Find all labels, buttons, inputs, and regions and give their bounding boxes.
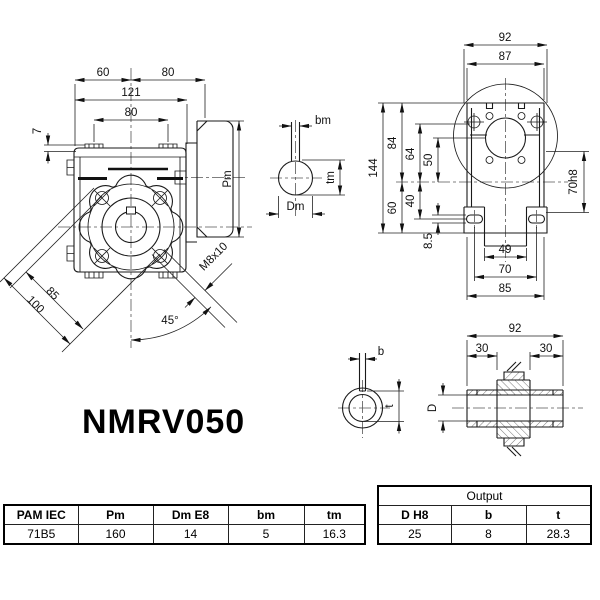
value-b: 8	[451, 525, 526, 545]
label-pm: Pm	[222, 170, 234, 187]
main-table-header-row: PAM IEC Pm Dm E8 bm tm	[4, 505, 365, 525]
output-table-title-row: Output	[378, 486, 591, 506]
label-144: 144	[368, 158, 380, 178]
value-pam-iec: 71B5	[4, 525, 78, 545]
label-92: 92	[499, 32, 512, 44]
header-b: b	[451, 506, 526, 525]
value-pm: 160	[78, 525, 153, 545]
header-tm: tm	[304, 505, 365, 525]
label-tm: tm	[325, 171, 337, 184]
sleeve-hatch-bottom-left	[467, 421, 497, 427]
model-title: NMRV050	[82, 403, 245, 442]
label-80-top: 80	[162, 67, 175, 79]
label-b: b	[378, 346, 384, 358]
header-bm: bm	[228, 505, 304, 525]
label-84: 84	[387, 136, 399, 149]
sleeve-hatch-bottom-right	[530, 421, 563, 427]
label-40: 40	[405, 195, 417, 208]
main-table-data-row: 71B5 160 14 5 16.3	[4, 525, 365, 545]
label-80-inner: 80	[125, 107, 138, 119]
gearbox-drawing-page: 60 80 121 80 7 Pm 85 100 M8x10 45° bm tm…	[0, 0, 600, 600]
header-pam-iec: PAM IEC	[4, 505, 78, 525]
label-t: t	[384, 404, 396, 408]
label-30-right: 30	[540, 343, 553, 355]
label-70h8: 70h8	[568, 169, 580, 195]
input-key-section: bm tm Dm	[266, 115, 345, 218]
output-table-title: Output	[378, 486, 591, 506]
label-121: 121	[121, 87, 140, 99]
label-70: 70	[499, 264, 512, 276]
side-extension-lines	[378, 49, 589, 300]
label-bm: bm	[315, 115, 331, 127]
key-hatch-top	[504, 372, 524, 380]
label-m8x10: M8x10	[197, 240, 230, 273]
output-shaft-section: 92 30 30 D	[427, 323, 583, 456]
label-30-left: 30	[476, 343, 489, 355]
side-centerlines	[396, 78, 568, 262]
label-92-shaft: 92	[509, 323, 522, 335]
value-dm-e8: 14	[153, 525, 228, 545]
sleeve-outline	[467, 390, 563, 427]
output-table-data-row: 25 8 28.3	[378, 525, 591, 545]
key-hatch-bottom	[504, 438, 524, 446]
m8-arrow-upper	[205, 281, 215, 291]
label-85-bottom: 85	[499, 283, 512, 295]
side-view: 92 87 144 84 60 64 50 40 8.5 49 70 85 70…	[368, 32, 589, 300]
label-dm: Dm	[287, 201, 305, 213]
label-100-diag: 100	[24, 294, 46, 316]
output-table-header-row: D H8 b t	[378, 506, 591, 525]
left-tabs	[67, 160, 74, 261]
sleeve-hatch-top-left	[467, 390, 497, 395]
label-60: 60	[97, 67, 110, 79]
bore-keyway	[127, 207, 136, 214]
label-85-diag: 85	[43, 285, 61, 303]
output-dimensions-table: Output D H8 b t 25 8 28.3	[377, 485, 592, 545]
label-d: D	[427, 404, 439, 412]
label-45deg: 45°	[161, 315, 178, 327]
header-pm: Pm	[78, 505, 153, 525]
front-centerlines	[58, 68, 252, 348]
header-d-h8: D H8	[378, 506, 451, 525]
label-7: 7	[32, 128, 44, 134]
front-view: 60 80 121 80 7 Pm 85 100 M8x10 45°	[0, 67, 252, 352]
label-50: 50	[423, 154, 435, 167]
label-49: 49	[499, 244, 512, 256]
value-t: 28.3	[526, 525, 591, 545]
header-dm-e8: Dm E8	[153, 505, 228, 525]
value-d-h8: 25	[378, 525, 451, 545]
m8-arrow-lower	[185, 298, 195, 308]
value-bm: 5	[228, 525, 304, 545]
hub-hatch-bottom	[497, 421, 530, 438]
label-64: 64	[405, 147, 417, 160]
label-87: 87	[499, 51, 512, 63]
label-8-5: 8.5	[423, 233, 435, 249]
main-dimensions-table: PAM IEC Pm Dm E8 bm tm 71B5 160 14 5 16.…	[3, 504, 366, 545]
header-t: t	[526, 506, 591, 525]
output-key-section: b t	[338, 346, 404, 438]
sleeve-hatch-top-right	[530, 390, 563, 395]
value-tm: 16.3	[304, 525, 365, 545]
label-60-side: 60	[387, 202, 399, 215]
hub-hatch-top	[497, 380, 530, 395]
